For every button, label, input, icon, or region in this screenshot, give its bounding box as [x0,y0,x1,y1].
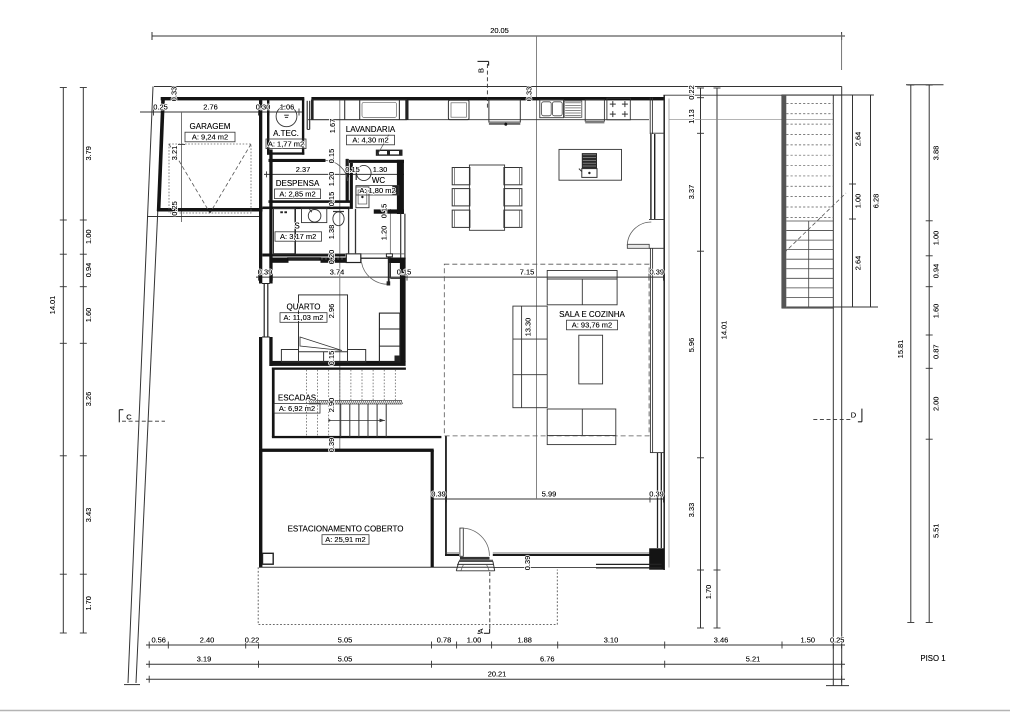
svg-text:2.00: 2.00 [932,397,941,411]
svg-text:0.56: 0.56 [151,636,165,645]
svg-text:3.46: 3.46 [714,636,728,645]
svg-text:DESPENSA: DESPENSA [276,179,320,188]
svg-text:S: S [294,222,299,231]
svg-text:2.64: 2.64 [854,132,863,146]
svg-text:0.87: 0.87 [932,344,941,358]
svg-text:2.64: 2.64 [854,256,863,270]
svg-text:14.01: 14.01 [48,296,57,315]
svg-text:0.25: 0.25 [153,103,167,112]
svg-text:0.94: 0.94 [932,264,941,278]
svg-text:1.38: 1.38 [327,225,336,239]
svg-text:3.19: 3.19 [197,655,211,664]
svg-text:1.70: 1.70 [704,585,713,599]
svg-text:0.33: 0.33 [170,87,179,101]
svg-text:0.30: 0.30 [256,103,270,112]
svg-text:3.37: 3.37 [687,185,696,199]
svg-text:1.50: 1.50 [801,636,815,645]
svg-text:C: C [126,413,132,422]
svg-text:6.76: 6.76 [540,655,554,664]
svg-text:1.30: 1.30 [373,165,387,174]
svg-text:A: 93,76 m2: A: 93,76 m2 [572,321,612,330]
svg-text:D: D [851,411,857,420]
svg-text:1.00: 1.00 [84,229,93,243]
svg-text:0.15: 0.15 [345,165,359,174]
svg-text:0.20: 0.20 [327,250,336,264]
svg-text:B: B [476,68,485,73]
svg-text:2.90: 2.90 [327,398,336,412]
svg-text:QUARTO: QUARTO [287,303,321,312]
svg-text:3.43: 3.43 [84,508,93,522]
svg-text:3.74: 3.74 [330,268,344,277]
svg-text:A: 2,85 m2: A: 2,85 m2 [279,189,315,198]
svg-text:0.39: 0.39 [649,489,663,498]
svg-text:20.05: 20.05 [490,26,509,35]
svg-text:0.15: 0.15 [327,351,336,365]
svg-text:0.25: 0.25 [830,636,844,645]
svg-text:ESTACIONAMENTO COBERTO: ESTACIONAMENTO COBERTO [288,525,404,534]
svg-text:A: 4,30 m2: A: 4,30 m2 [352,136,388,145]
svg-text:15.81: 15.81 [896,340,905,359]
svg-text:5.99: 5.99 [542,489,556,498]
svg-text:7.15: 7.15 [520,268,534,277]
svg-text:0.22: 0.22 [245,636,259,645]
svg-text:0.94: 0.94 [84,263,93,277]
svg-text:5.96: 5.96 [687,338,696,352]
svg-text:2.37: 2.37 [296,165,310,174]
svg-text:0.78: 0.78 [437,636,451,645]
svg-text:ESCADAS: ESCADAS [278,393,316,402]
svg-text:LAVANDARIA: LAVANDARIA [346,125,396,134]
svg-text:1.60: 1.60 [84,308,93,322]
svg-text:0.22: 0.22 [687,85,696,99]
svg-text:0.39: 0.39 [431,489,445,498]
svg-text:A: 6,92 m2: A: 6,92 m2 [279,404,315,413]
svg-text:5.51: 5.51 [932,524,941,538]
svg-text:1.00: 1.00 [854,194,863,208]
svg-text:1.60: 1.60 [932,304,941,318]
svg-text:5.21: 5.21 [746,655,760,664]
svg-text:A: 3,17 m2: A: 3,17 m2 [280,232,316,241]
svg-text:1.06: 1.06 [280,103,294,112]
svg-text:A.TEC.: A.TEC. [273,129,299,138]
svg-text:6.28: 6.28 [872,194,881,208]
svg-text:1.20: 1.20 [327,172,336,186]
svg-text:0.25: 0.25 [170,201,179,215]
svg-text:0.15: 0.15 [327,192,336,206]
svg-text:0.15: 0.15 [327,149,336,163]
svg-text:3.33: 3.33 [687,503,696,517]
svg-text:3.26: 3.26 [84,392,93,406]
svg-text:20.21: 20.21 [488,670,507,679]
svg-text:0.33: 0.33 [525,87,534,101]
svg-text:3.21: 3.21 [170,146,179,160]
svg-text:0.15: 0.15 [397,268,411,277]
svg-text:1.67: 1.67 [328,119,337,133]
svg-text:13.30: 13.30 [524,318,533,337]
svg-text:1.88: 1.88 [517,636,531,645]
svg-text:0.39: 0.39 [650,268,664,277]
svg-text:14.01: 14.01 [720,321,729,340]
svg-text:SALA E COZINHA: SALA E COZINHA [559,310,625,319]
svg-text:1.00: 1.00 [932,231,941,245]
svg-text:5.05: 5.05 [338,636,352,645]
svg-text:WC: WC [372,176,386,185]
svg-text:1.70: 1.70 [84,596,93,610]
svg-text:0.39: 0.39 [327,438,336,452]
svg-text:2.76: 2.76 [203,103,217,112]
svg-text:A: A [476,628,485,633]
svg-text:5.05: 5.05 [338,655,352,664]
svg-text:2.96: 2.96 [327,304,336,318]
svg-text:A: 1,77 m2: A: 1,77 m2 [268,139,304,148]
svg-text:3.79: 3.79 [84,146,93,160]
svg-text:A: 11,03 m2: A: 11,03 m2 [284,313,324,322]
svg-text:2.40: 2.40 [200,636,214,645]
svg-text:1.00: 1.00 [467,636,481,645]
svg-text:1.20: 1.20 [380,226,389,240]
svg-text:PISO 1: PISO 1 [920,654,945,663]
svg-text:A: 9,24 m2: A: 9,24 m2 [192,133,228,142]
svg-text:3.10: 3.10 [604,636,618,645]
svg-text:GARAGEM: GARAGEM [190,122,231,131]
svg-text:3.88: 3.88 [932,146,941,160]
svg-text:A: 1,80 m2: A: 1,80 m2 [359,186,395,195]
svg-text:0.39: 0.39 [258,268,272,277]
svg-text:A: 25,91 m2: A: 25,91 m2 [325,535,365,544]
svg-text:1.13: 1.13 [687,109,696,123]
svg-text:0.39: 0.39 [523,556,532,570]
svg-text:0.15: 0.15 [380,204,389,218]
